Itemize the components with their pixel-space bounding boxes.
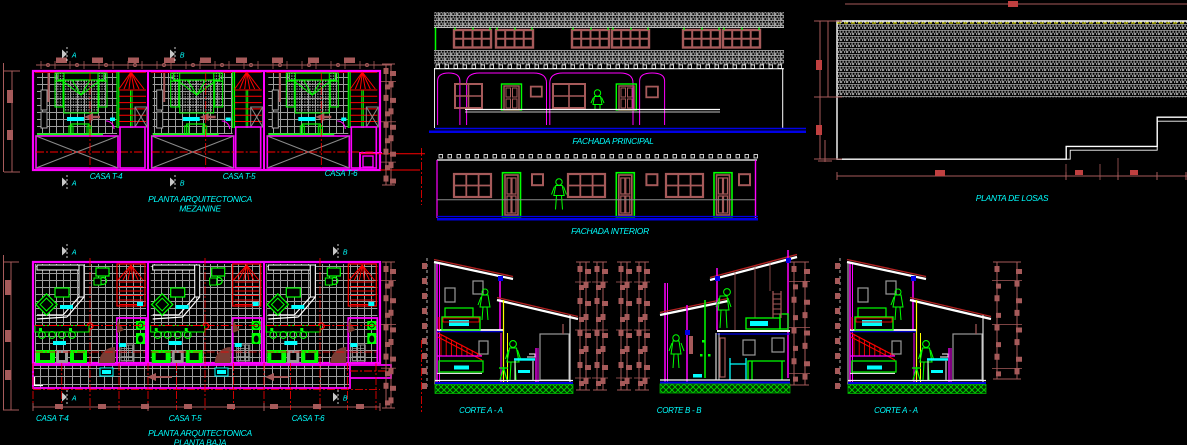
svg-text:B: B: [343, 396, 348, 403]
svg-text:B: B: [343, 250, 348, 257]
svg-text:FACHADA INTERIOR: FACHADA INTERIOR: [571, 226, 649, 236]
svg-text:PLANTA ARQUITECTONICA: PLANTA ARQUITECTONICA: [148, 428, 252, 438]
svg-text:A: A: [71, 396, 77, 403]
svg-text:PLANTA BAJA: PLANTA BAJA: [174, 438, 227, 445]
svg-text:CORTE B - B: CORTE B - B: [657, 406, 703, 415]
svg-text:CORTE A - A: CORTE A - A: [874, 406, 918, 415]
svg-text:A: A: [71, 181, 77, 188]
svg-text:MEZANINE: MEZANINE: [179, 204, 221, 214]
svg-text:CASA T-6: CASA T-6: [325, 169, 358, 178]
svg-text:CASA T-4: CASA T-4: [90, 172, 123, 181]
svg-text:CASA T-4: CASA T-4: [36, 414, 69, 423]
svg-text:A: A: [71, 250, 77, 257]
svg-text:A: A: [71, 53, 77, 60]
svg-text:B: B: [180, 53, 185, 60]
svg-text:CORTE A - A: CORTE A - A: [459, 406, 503, 415]
svg-text:CASA T-5: CASA T-5: [169, 414, 202, 423]
svg-text:CASA T-6: CASA T-6: [292, 414, 325, 423]
svg-text:CASA T-5: CASA T-5: [223, 172, 256, 181]
svg-text:B: B: [180, 181, 185, 188]
svg-text:PLANTA DE LOSAS: PLANTA DE LOSAS: [976, 193, 1049, 203]
svg-text:FACHADA PRINCIPAL: FACHADA PRINCIPAL: [572, 136, 654, 146]
svg-text:PLANTA ARQUITECTONICA: PLANTA ARQUITECTONICA: [148, 194, 252, 204]
